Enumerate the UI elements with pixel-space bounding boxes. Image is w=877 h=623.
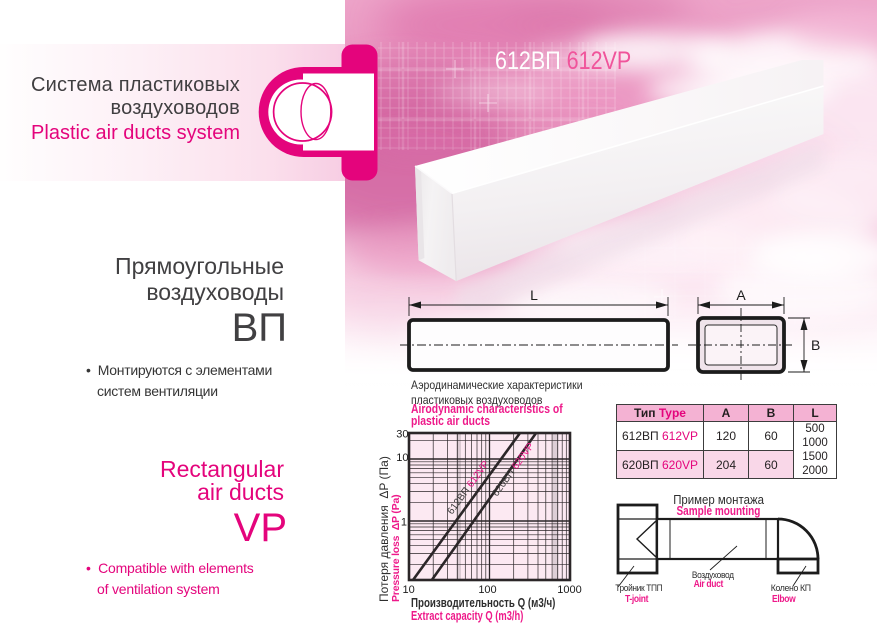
- svg-text:L: L: [530, 287, 538, 303]
- svg-text:30: 30: [396, 429, 408, 441]
- svg-text:1000: 1000: [557, 584, 581, 596]
- svg-text:B: B: [811, 337, 820, 353]
- svg-text:10: 10: [396, 452, 408, 464]
- svg-text:A: A: [736, 287, 746, 303]
